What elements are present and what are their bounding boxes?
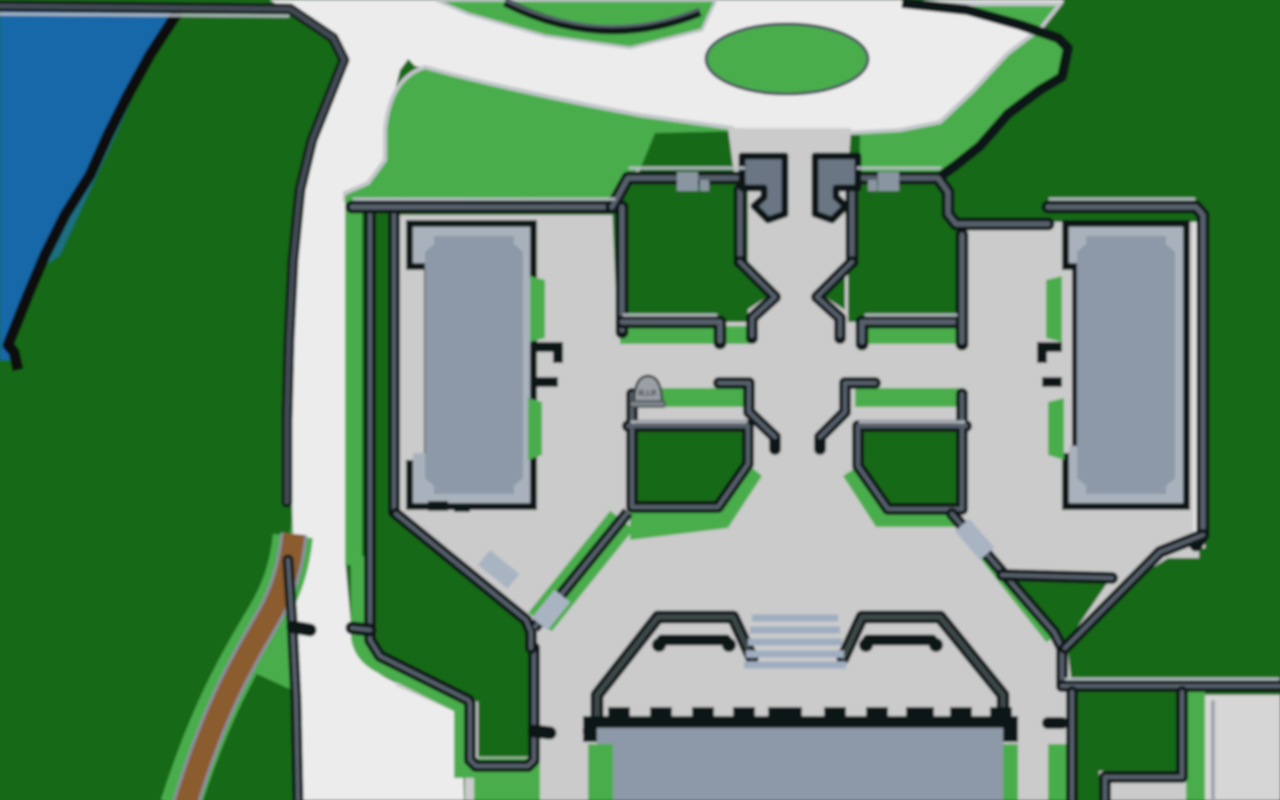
svg-text:R.I.P.: R.I.P.: [639, 389, 658, 398]
